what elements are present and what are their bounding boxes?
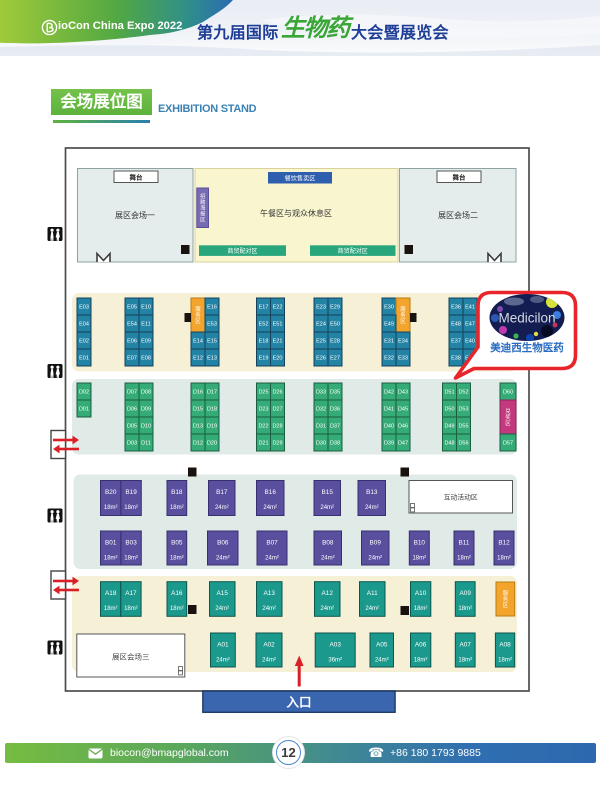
svg-text:18m²: 18m²	[170, 505, 184, 511]
svg-text:A15: A15	[217, 590, 229, 597]
svg-text:D07: D07	[127, 390, 137, 396]
svg-text:B01: B01	[105, 540, 117, 547]
svg-text:E14: E14	[193, 339, 203, 345]
svg-text:报: 报	[200, 209, 205, 217]
svg-text:A16: A16	[171, 590, 183, 597]
svg-text:A02: A02	[263, 642, 275, 649]
svg-text:24m²: 24m²	[365, 606, 379, 612]
svg-text:E26: E26	[316, 356, 326, 362]
svg-text:E34: E34	[398, 339, 408, 345]
svg-text:E27: E27	[330, 356, 340, 362]
svg-text:D41: D41	[384, 407, 394, 413]
svg-text:D17: D17	[207, 390, 217, 396]
svg-text:A07: A07	[460, 642, 472, 649]
svg-text:E19: E19	[259, 356, 269, 362]
svg-text:E25: E25	[316, 339, 326, 345]
svg-text:区: 区	[195, 318, 201, 325]
svg-text:D33: D33	[316, 390, 326, 396]
svg-text:24m²: 24m²	[365, 505, 379, 511]
svg-text:B18: B18	[171, 489, 183, 496]
svg-text:D05: D05	[127, 424, 137, 430]
svg-text:D47: D47	[398, 441, 408, 447]
svg-text:D28: D28	[272, 424, 282, 430]
svg-text:18m²: 18m²	[457, 556, 471, 562]
svg-text:商贸配对区: 商贸配对区	[227, 247, 257, 255]
svg-text:A12: A12	[322, 590, 334, 597]
svg-text:展区会场三: 展区会场三	[112, 652, 150, 662]
svg-text:餐饮售卖区: 餐饮售卖区	[285, 175, 316, 183]
svg-text:D03: D03	[127, 441, 137, 447]
svg-text:互动活动区: 互动活动区	[444, 493, 478, 502]
svg-text:E49: E49	[384, 322, 394, 328]
svg-text:24m²: 24m²	[262, 658, 276, 664]
svg-text:E33: E33	[398, 356, 408, 362]
svg-text:D32: D32	[316, 407, 326, 413]
svg-text:E01: E01	[79, 356, 89, 362]
svg-text:D20: D20	[207, 441, 217, 447]
svg-text:D52: D52	[458, 390, 468, 396]
svg-text:E31: E31	[384, 339, 394, 345]
svg-text:E53: E53	[207, 322, 217, 328]
svg-text:E51: E51	[273, 322, 283, 328]
svg-text:18m²: 18m²	[104, 556, 118, 562]
svg-text:D21: D21	[258, 441, 268, 447]
svg-text:A08: A08	[499, 642, 511, 649]
svg-text:E54: E54	[127, 322, 137, 328]
svg-text:24m²: 24m²	[262, 606, 276, 612]
svg-text:E04: E04	[79, 322, 89, 328]
svg-text:D45: D45	[398, 407, 408, 413]
svg-text:A11: A11	[367, 590, 378, 597]
svg-text:E07: E07	[127, 356, 137, 362]
svg-text:聘: 聘	[200, 198, 205, 206]
svg-text:E38: E38	[451, 356, 461, 362]
svg-text:18m²: 18m²	[458, 606, 472, 612]
svg-text:A03: A03	[330, 642, 342, 649]
svg-text:24m²: 24m²	[216, 556, 230, 562]
svg-text:18m²: 18m²	[124, 606, 138, 612]
svg-text:A01: A01	[217, 642, 229, 649]
svg-text:区: 区	[200, 216, 205, 223]
svg-text:B06: B06	[217, 540, 229, 547]
svg-text:B03: B03	[125, 540, 137, 547]
svg-text:18m²: 18m²	[170, 556, 184, 562]
svg-text:E13: E13	[207, 356, 217, 362]
svg-text:24m²: 24m²	[320, 505, 334, 511]
svg-text:E41: E41	[465, 305, 475, 311]
svg-text:24m²: 24m²	[263, 505, 277, 511]
svg-text:D48: D48	[444, 441, 454, 447]
svg-text:E18: E18	[259, 339, 269, 345]
svg-text:D12: D12	[193, 441, 203, 447]
svg-text:18m²: 18m²	[104, 606, 118, 612]
svg-text:B20: B20	[105, 489, 117, 496]
svg-text:B15: B15	[322, 489, 334, 496]
svg-text:D27: D27	[272, 407, 282, 413]
svg-text:D50: D50	[444, 407, 454, 413]
svg-text:E08: E08	[141, 356, 151, 362]
svg-text:D11: D11	[141, 441, 151, 447]
svg-text:务: 务	[195, 311, 201, 319]
svg-text:D42: D42	[384, 390, 394, 396]
svg-text:18m²: 18m²	[458, 658, 472, 664]
svg-text:36m²: 36m²	[328, 658, 342, 664]
svg-text:D60: D60	[503, 390, 513, 396]
svg-text:区: 区	[503, 602, 509, 609]
svg-text:E06: E06	[127, 339, 137, 345]
svg-text:B08: B08	[322, 540, 334, 547]
svg-text:D57: D57	[503, 441, 513, 447]
svg-text:E29: E29	[330, 305, 340, 311]
svg-text:D06: D06	[127, 407, 137, 413]
svg-text:B19: B19	[125, 489, 137, 496]
svg-text:E32: E32	[384, 356, 394, 362]
svg-text:区: 区	[505, 420, 511, 427]
svg-text:D39: D39	[384, 441, 394, 447]
svg-text:E12: E12	[193, 356, 203, 362]
svg-text:24m²: 24m²	[320, 606, 334, 612]
svg-text:商贸配对区: 商贸配对区	[338, 247, 368, 255]
svg-text:18m²: 18m²	[170, 606, 184, 612]
svg-text:A10: A10	[415, 590, 427, 597]
svg-text:E22: E22	[273, 305, 283, 311]
svg-text:E24: E24	[316, 322, 326, 328]
svg-text:D09: D09	[141, 407, 151, 413]
svg-text:E15: E15	[207, 339, 217, 345]
svg-text:D22: D22	[258, 424, 268, 430]
svg-text:D56: D56	[458, 441, 468, 447]
svg-text:奖: 奖	[505, 413, 511, 421]
svg-text:A18: A18	[105, 590, 117, 597]
svg-text:E10: E10	[141, 305, 151, 311]
svg-text:18m²: 18m²	[104, 505, 118, 511]
svg-text:18m²: 18m²	[498, 658, 512, 664]
svg-text:D40: D40	[384, 424, 394, 430]
svg-text:D35: D35	[330, 390, 340, 396]
svg-text:B17: B17	[216, 489, 228, 496]
svg-text:D46: D46	[398, 424, 408, 430]
svg-text:海: 海	[200, 204, 205, 212]
svg-text:招: 招	[200, 192, 205, 200]
svg-text:D51: D51	[444, 390, 454, 396]
svg-text:舞台: 舞台	[453, 173, 467, 182]
svg-text:24m²: 24m²	[215, 606, 229, 612]
svg-text:A17: A17	[125, 590, 137, 597]
svg-text:D55: D55	[458, 424, 468, 430]
svg-text:18m²: 18m²	[412, 556, 426, 562]
svg-text:D01: D01	[79, 407, 89, 413]
svg-text:A06: A06	[415, 642, 427, 649]
svg-text:18m²: 18m²	[497, 556, 511, 562]
svg-text:D08: D08	[141, 390, 151, 396]
svg-text:E05: E05	[127, 305, 137, 311]
svg-text:D38: D38	[330, 441, 340, 447]
svg-text:B10: B10	[414, 540, 426, 547]
svg-text:18m²: 18m²	[414, 606, 428, 612]
svg-text:E52: E52	[259, 322, 269, 328]
svg-text:服: 服	[195, 306, 201, 313]
svg-text:B07: B07	[266, 540, 278, 547]
svg-text:E47: E47	[465, 322, 475, 328]
svg-text:B05: B05	[171, 540, 183, 547]
svg-text:D19: D19	[207, 424, 217, 430]
svg-text:D10: D10	[141, 424, 151, 430]
svg-text:D13: D13	[193, 424, 203, 430]
svg-text:E48: E48	[451, 322, 461, 328]
svg-text:务: 务	[400, 311, 406, 319]
svg-text:展区会场一: 展区会场一	[115, 210, 155, 220]
svg-text:24m²: 24m²	[368, 556, 382, 562]
svg-text:D37: D37	[330, 424, 340, 430]
svg-text:24m²: 24m²	[216, 658, 230, 664]
svg-text:D26: D26	[272, 390, 282, 396]
svg-text:D23: D23	[258, 407, 268, 413]
svg-text:24m²: 24m²	[215, 505, 229, 511]
svg-text:E37: E37	[451, 339, 461, 345]
svg-text:B13: B13	[366, 489, 378, 496]
svg-text:A09: A09	[460, 590, 472, 597]
svg-text:18m²: 18m²	[124, 556, 138, 562]
svg-text:24m²: 24m²	[321, 556, 335, 562]
svg-text:E09: E09	[141, 339, 151, 345]
svg-text:E17: E17	[259, 305, 269, 311]
svg-text:E30: E30	[384, 305, 394, 311]
svg-text:B09: B09	[370, 540, 382, 547]
svg-text:服: 服	[503, 590, 509, 597]
svg-text:D31: D31	[316, 424, 326, 430]
svg-text:Medicilon: Medicilon	[498, 311, 555, 326]
svg-text:D53: D53	[458, 407, 468, 413]
svg-text:美迪西生物医药: 美迪西生物医药	[490, 341, 564, 354]
svg-text:E21: E21	[273, 339, 283, 345]
svg-text:D15: D15	[193, 407, 203, 413]
svg-text:E03: E03	[79, 305, 89, 311]
svg-text:E50: E50	[330, 322, 340, 328]
svg-text:A05: A05	[376, 642, 388, 649]
svg-text:务: 务	[503, 595, 509, 603]
svg-text:入口: 入口	[286, 696, 311, 710]
svg-text:E36: E36	[451, 305, 461, 311]
svg-text:服: 服	[400, 306, 406, 313]
svg-text:D43: D43	[398, 390, 408, 396]
svg-text:E40: E40	[465, 339, 475, 345]
svg-text:舞台: 舞台	[130, 173, 144, 182]
svg-text:兑: 兑	[505, 407, 511, 415]
svg-text:E16: E16	[207, 305, 217, 311]
svg-text:D29: D29	[272, 441, 282, 447]
svg-text:午餐区与观众休息区: 午餐区与观众休息区	[260, 208, 332, 218]
svg-text:D16: D16	[193, 390, 203, 396]
svg-text:E23: E23	[316, 305, 326, 311]
svg-text:B11: B11	[459, 540, 470, 547]
svg-text:B12: B12	[498, 540, 510, 547]
svg-text:D36: D36	[330, 407, 340, 413]
svg-text:E20: E20	[273, 356, 283, 362]
svg-text:E11: E11	[141, 322, 150, 328]
svg-text:D18: D18	[207, 407, 217, 413]
svg-text:E28: E28	[330, 339, 340, 345]
svg-text:24m²: 24m²	[265, 556, 279, 562]
svg-text:24m²: 24m²	[375, 658, 389, 664]
svg-text:18m²: 18m²	[124, 505, 138, 511]
svg-text:D25: D25	[258, 390, 268, 396]
svg-text:18m²: 18m²	[414, 658, 428, 664]
svg-text:E02: E02	[79, 339, 89, 345]
svg-text:D30: D30	[316, 441, 326, 447]
svg-text:D49: D49	[444, 424, 454, 430]
svg-text:区: 区	[400, 318, 406, 325]
svg-text:展区会场二: 展区会场二	[438, 210, 478, 220]
svg-text:D02: D02	[79, 390, 89, 396]
svg-text:B16: B16	[265, 489, 277, 496]
svg-text:A13: A13	[264, 590, 276, 597]
